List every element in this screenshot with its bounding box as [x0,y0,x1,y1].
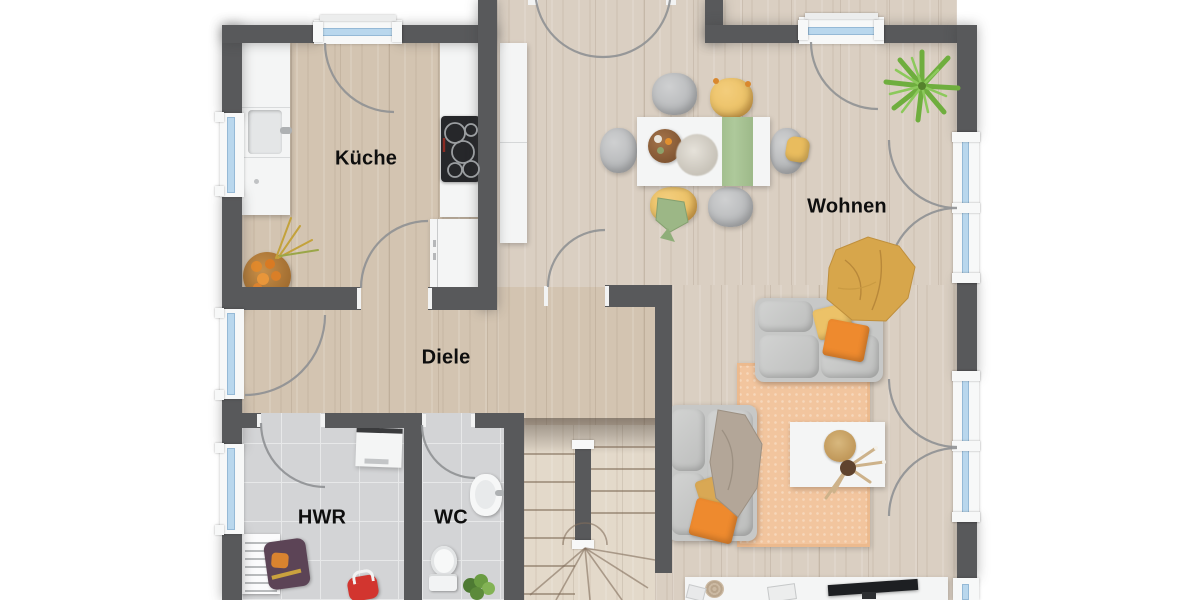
sofa1-seat-left [759,335,819,378]
fd2-cap-top [952,371,980,381]
jamb-wc-door-2 [471,414,475,427]
sofa1-back-cushion [758,301,813,332]
kitchen-door-cap-right [392,22,402,42]
fruit-1 [251,261,262,272]
table-runner [722,117,753,186]
jamb-stair-door-1 [544,286,548,306]
wall-kitchen-diele-1 [242,287,361,310]
kitchen-door-cap-left [313,22,323,42]
staircase [524,425,655,600]
red-vacuum [346,574,380,600]
jamb-kitchen-door-2 [428,288,432,309]
room-label-kueche: Küche [335,148,397,171]
hwr-window-cap-top [215,443,224,453]
fruit-2 [265,259,275,269]
pot-bloom-1 [654,135,662,143]
wall-right-1 [957,25,977,137]
jamb-wc-door-1 [422,414,426,427]
jamb-stair-door-2 [605,286,609,306]
hall-cabinet [500,43,527,243]
toilet-bowl [431,546,457,576]
dining-chair-bottom-right [708,187,753,227]
wc-plant-blob-4 [470,587,484,600]
tv-stand [862,592,876,599]
stair-rail-cap-top [572,440,594,449]
room-label-wohnen: Wohnen [807,196,887,219]
hall-cabinet-seam [500,142,527,143]
hwr-window-glass [227,448,235,530]
kitchen-faucet [280,127,292,134]
sofa2-back-top [671,409,705,471]
fridge-handle-2 [433,253,436,260]
living-top-door-sill [805,13,878,19]
stair-rail-cap-bottom [572,540,594,549]
chair-arm-nub-1 [713,78,719,84]
kitchen-window-glass [227,117,235,193]
fridge-seam [437,219,438,287]
laundry-stripe [271,569,301,580]
fd2-cap-mid [952,441,980,451]
counter-seam-1 [242,107,290,108]
wall-hwr-wc-divider [404,413,422,600]
toilet-tank [429,574,457,591]
fridge-handle-1 [433,240,436,247]
stair-flight-left [524,427,575,600]
floorplan-canvas: Küche Wohnen Diele HWR WC [0,0,1200,600]
dining-chair-bottom-left [650,187,697,224]
dining-chair-left [600,128,637,173]
room-label-wc: WC [434,507,468,530]
room-label-hwr: HWR [298,507,346,530]
room-label-diele: Diele [422,347,471,370]
wall-right-2 [957,278,977,377]
fd1-cap-top [952,132,980,142]
pot-bloom-2 [665,138,672,145]
laundry-pile [263,537,311,590]
decor-tray [824,430,856,462]
wall-wc-right [504,413,524,600]
fd1-cap-bottom [952,273,980,283]
living-top-door-glass [808,27,876,35]
jamb-hwr-door-1 [257,414,261,427]
wall-left-4 [222,530,242,600]
hall-door-jamb-left [528,0,538,5]
cooktop [441,116,480,182]
kitchen-terrace-door-sill [320,15,396,21]
entrance-door-cap-top [215,308,224,318]
bottom-right-window-glass [962,584,969,600]
pillow-orange-sofa1 [822,318,870,362]
wall-hwr-top-2 [325,413,404,428]
wall-left-3 [222,395,242,448]
washing-machine [355,427,402,468]
wall-top-a1 [222,25,318,43]
stair-void-wall [575,443,591,545]
table-bouquet [676,134,718,176]
wall-left-2 [222,193,242,313]
dining-chair-top-left [652,73,697,115]
kitchen-sink [248,110,282,154]
chair-arm-nub-2 [745,81,751,87]
wall-right-3 [957,517,977,578]
living-door-cap-left [798,20,808,40]
hwr-window-cap-bottom [215,525,224,535]
kitchen-window-cap-top [215,112,224,122]
living-door-cap-right [874,20,884,40]
washer-top-gap [357,427,403,434]
counter-seam-2 [242,157,290,158]
jamb-kitchen-door-1 [357,288,361,309]
entrance-door-cap-bottom [215,390,224,400]
pot-bloom-3 [657,147,664,154]
fd2-cap-bottom [952,512,980,522]
jamb-hwr-door-2 [321,414,325,427]
kitchen-counter-left [242,43,290,215]
wall-hall-west [478,0,497,310]
kitchen-terrace-door-glass [322,28,394,36]
wall-kitchen-diele-2 [428,287,497,310]
fruit-4 [271,271,281,281]
wc-plant [462,574,496,600]
wall-wc-top [475,413,504,428]
cabinet-knob [254,179,259,184]
wall-top-b2 [880,25,957,43]
fd1-cap-mid [952,203,980,213]
hall-door-jamb-right [666,0,676,5]
floor-strip-below-wall [655,573,672,600]
stair-flight-right [591,426,655,515]
wall-top-b1 [705,25,803,43]
sideboard-vase [705,580,724,598]
laundry-orange [271,552,289,568]
fridge [430,219,484,287]
entrance-door-glass [227,313,235,395]
kitchen-window-cap-bottom [215,186,224,196]
sideboard-books-2 [767,583,797,600]
wall-divider-living [655,285,672,573]
washer-vent [364,459,388,465]
basin-bowl [475,480,496,509]
wall-stair-stub [605,285,655,307]
